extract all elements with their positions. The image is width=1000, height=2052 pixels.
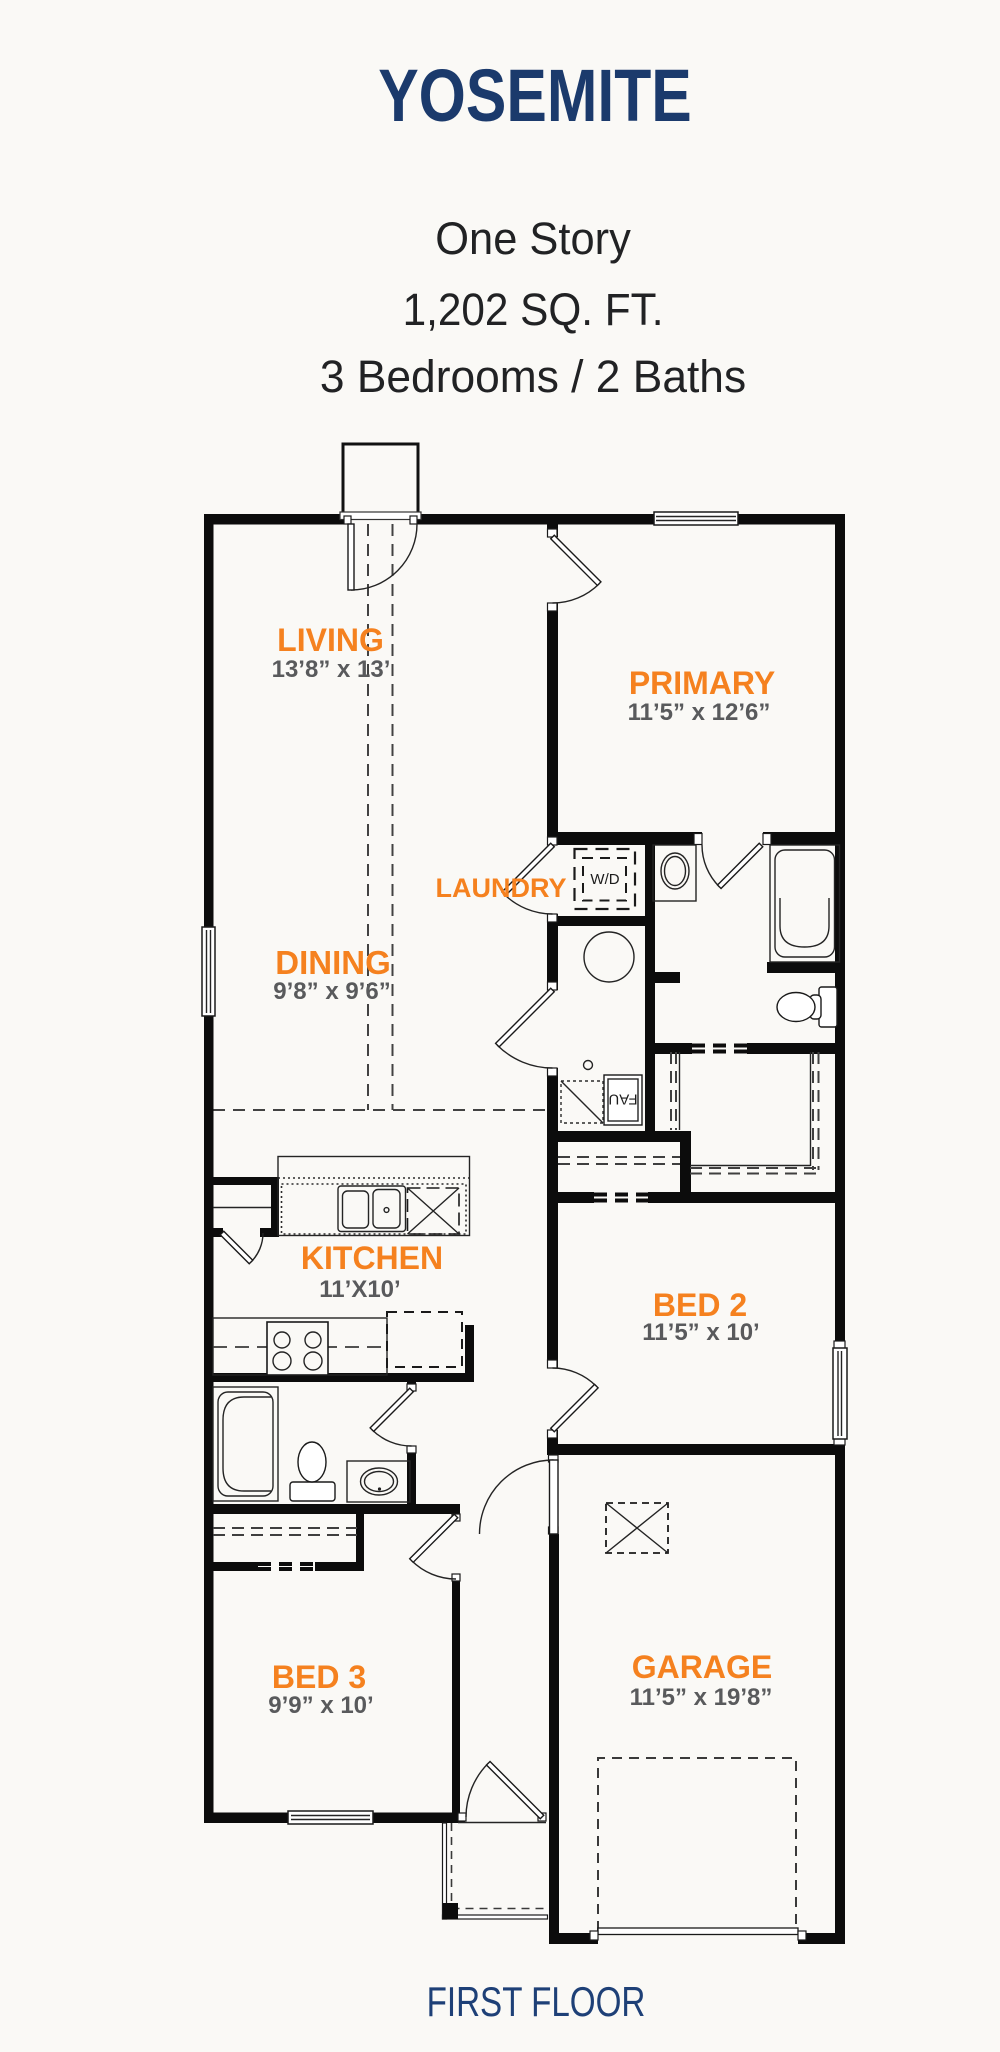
svg-text:W/D: W/D	[590, 871, 619, 888]
svg-text:KITCHEN: KITCHEN	[301, 1240, 443, 1276]
svg-text:9’9” x 10’: 9’9” x 10’	[268, 1692, 373, 1719]
svg-text:LAUNDRY: LAUNDRY	[436, 873, 567, 903]
svg-text:PRIMARY: PRIMARY	[629, 665, 775, 701]
svg-text:11’5” x 19’8”: 11’5” x 19’8”	[630, 1684, 773, 1711]
svg-text:BED 2: BED 2	[653, 1287, 747, 1323]
svg-text:GARAGE: GARAGE	[632, 1649, 772, 1685]
svg-text:LIVING: LIVING	[277, 622, 384, 658]
svg-text:13’8” x 13’: 13’8” x 13’	[272, 656, 391, 683]
svg-text:11’5” x 10’: 11’5” x 10’	[642, 1319, 759, 1346]
svg-text:11’5” x 12’6”: 11’5” x 12’6”	[628, 699, 771, 726]
svg-text:DINING: DINING	[275, 944, 391, 981]
svg-text:FAU: FAU	[608, 1091, 637, 1108]
svg-text:11’X10’: 11’X10’	[319, 1276, 400, 1303]
svg-text:9’8” x 9’6”: 9’8” x 9’6”	[273, 978, 390, 1005]
svg-text:BED 3: BED 3	[272, 1659, 366, 1695]
